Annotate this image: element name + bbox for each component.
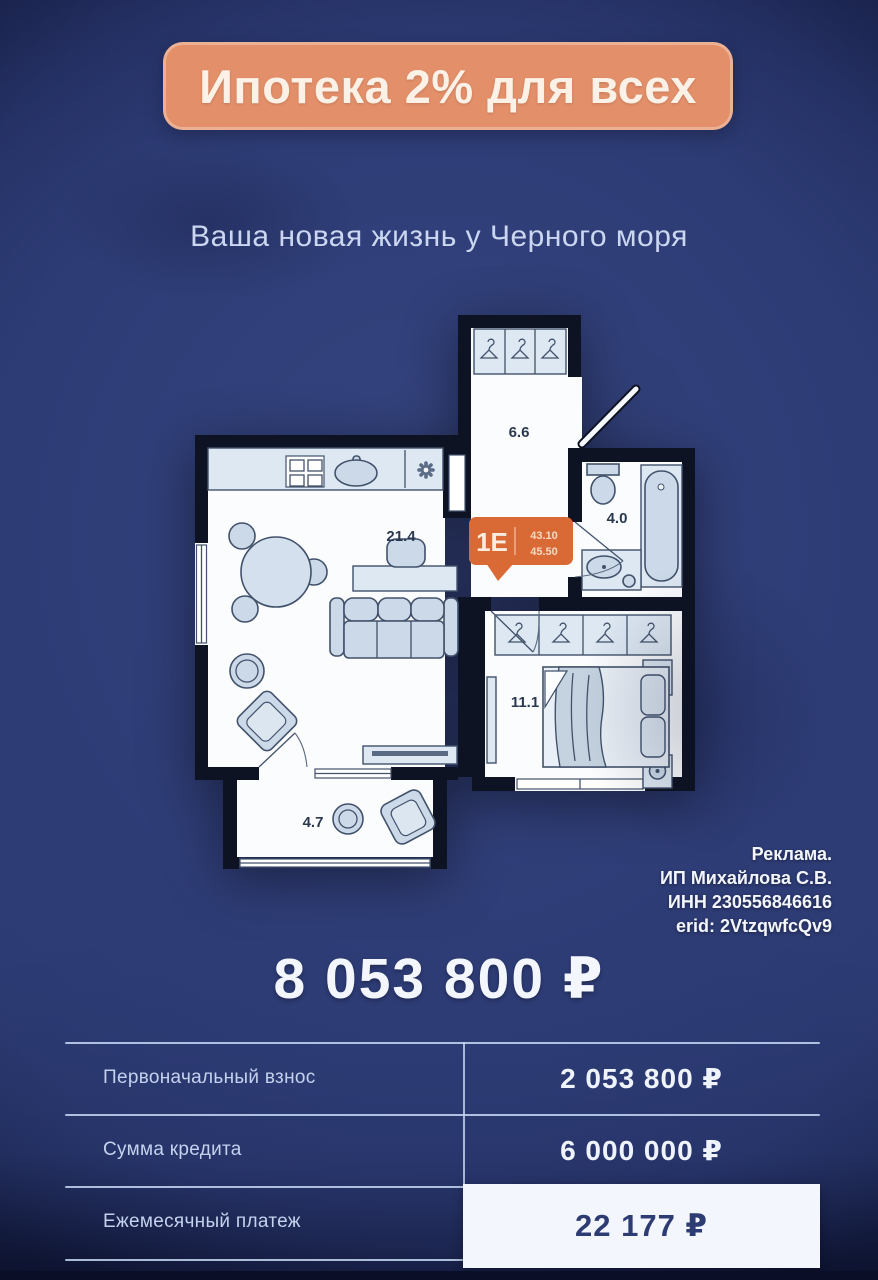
room-label-hall: 6.6: [509, 424, 530, 441]
room-label-bedroom: 11.1: [511, 694, 539, 711]
nightstand: [643, 755, 672, 788]
mortgage-table: Первоначальный взнос 2 053 800 ₽ Сумма к…: [65, 1042, 820, 1268]
ad-poster: Ипотека 2% для всех Ваша новая жизнь у Ч…: [0, 0, 878, 1280]
dining-table: [241, 537, 311, 607]
toilet: [587, 464, 619, 475]
ad-disclosure-line: Реклама.: [660, 842, 832, 866]
hanger-icon: [641, 623, 657, 642]
kitchen-sink: [335, 460, 377, 486]
row-label: Ежемесячный платеж: [65, 1211, 301, 1233]
total-price: 8 053 800 ₽: [0, 946, 878, 1012]
tv-screen: [372, 751, 448, 756]
unit-area-living: 43.10: [530, 530, 558, 542]
table-row: Первоначальный взнос 2 053 800 ₽: [65, 1042, 820, 1114]
room-label-bathroom: 4.0: [607, 510, 628, 527]
nightstand: [643, 660, 672, 695]
radiator: [487, 677, 496, 763]
row-label: Сумма кредита: [65, 1139, 242, 1161]
chair: [229, 523, 255, 549]
floor-plan: 21.4 6.6 4.0 11.1 4.7 1Е 43.10 45.50: [195, 315, 695, 875]
room-label-kitchen: 21.4: [386, 528, 416, 545]
room-label-balcony: 4.7: [303, 814, 324, 831]
tagline: Ваша новая жизнь у Черного моря: [0, 220, 878, 254]
entrance-threshold: [568, 377, 582, 448]
pillow: [641, 675, 665, 715]
coffee-table: [333, 804, 363, 834]
bottom-bar: [0, 1271, 878, 1280]
hall-wardrobe: [474, 329, 566, 374]
promo-banner-text: Ипотека 2% для всех: [199, 59, 697, 114]
desk: [353, 566, 457, 591]
ad-disclosure-line: erid: 2VtzqwfcQv9: [660, 914, 832, 938]
kitchen-counter: [208, 448, 443, 490]
entrance-door: [582, 389, 636, 444]
monthly-payment-highlight: 22 177 ₽: [463, 1184, 820, 1268]
table-line: [65, 1259, 463, 1261]
table-row: Сумма кредита 6 000 000 ₽: [65, 1114, 820, 1186]
pillow: [641, 717, 665, 757]
row-label: Первоначальный взнос: [65, 1067, 316, 1089]
ad-disclosure: Реклама. ИП Михайлова С.В. ИНН 230556846…: [660, 842, 832, 938]
hanger-icon: [597, 623, 613, 642]
row-value: 2 053 800 ₽: [463, 1062, 820, 1095]
vent-icon: [419, 463, 433, 477]
row-value: 6 000 000 ₽: [463, 1134, 820, 1167]
vent-shaft: [449, 455, 465, 511]
ad-disclosure-line: ИНН 230556846616: [660, 890, 832, 914]
unit-area-total: 45.50: [530, 546, 558, 558]
blanket: [555, 667, 606, 767]
unit-type: 1Е: [476, 527, 508, 557]
pouf: [230, 654, 264, 688]
promo-banner: Ипотека 2% для всех: [163, 42, 733, 130]
sofa: [330, 598, 344, 656]
washing-machine-icon: [623, 575, 635, 587]
ad-disclosure-line: ИП Михайлова С.В.: [660, 866, 832, 890]
